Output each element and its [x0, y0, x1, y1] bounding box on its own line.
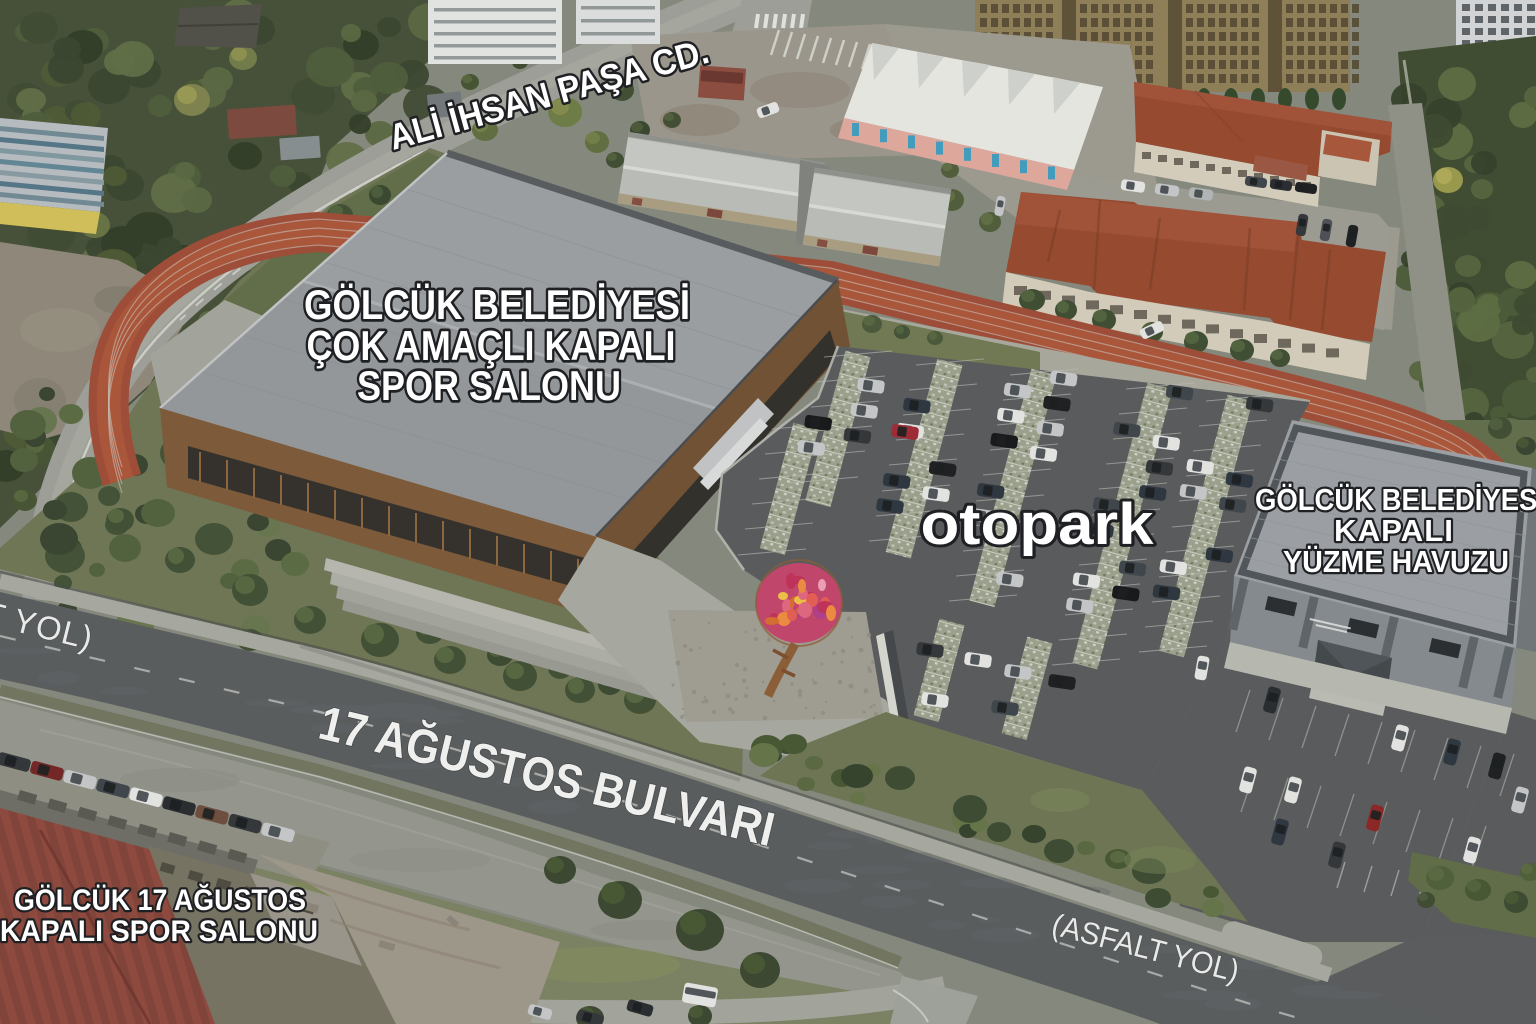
svg-text:GÖLCÜK BELEDİYESİ: GÖLCÜK BELEDİYESİ — [1255, 482, 1536, 517]
svg-text:KAPALI SPOR SALONU: KAPALI SPOR SALONU — [0, 915, 318, 948]
svg-text:GÖLCÜK BELEDİYESİ: GÖLCÜK BELEDİYESİ — [304, 281, 690, 328]
svg-text:GÖLCÜK 17 AĞUSTOS: GÖLCÜK 17 AĞUSTOS — [14, 883, 306, 917]
svg-text:SPOR SALONU: SPOR SALONU — [357, 362, 621, 409]
svg-text:YÜZME HAVUZU: YÜZME HAVUZU — [1283, 544, 1509, 579]
svg-text:otopark: otopark — [921, 492, 1155, 557]
svg-text:KAPALI: KAPALI — [1334, 513, 1454, 548]
